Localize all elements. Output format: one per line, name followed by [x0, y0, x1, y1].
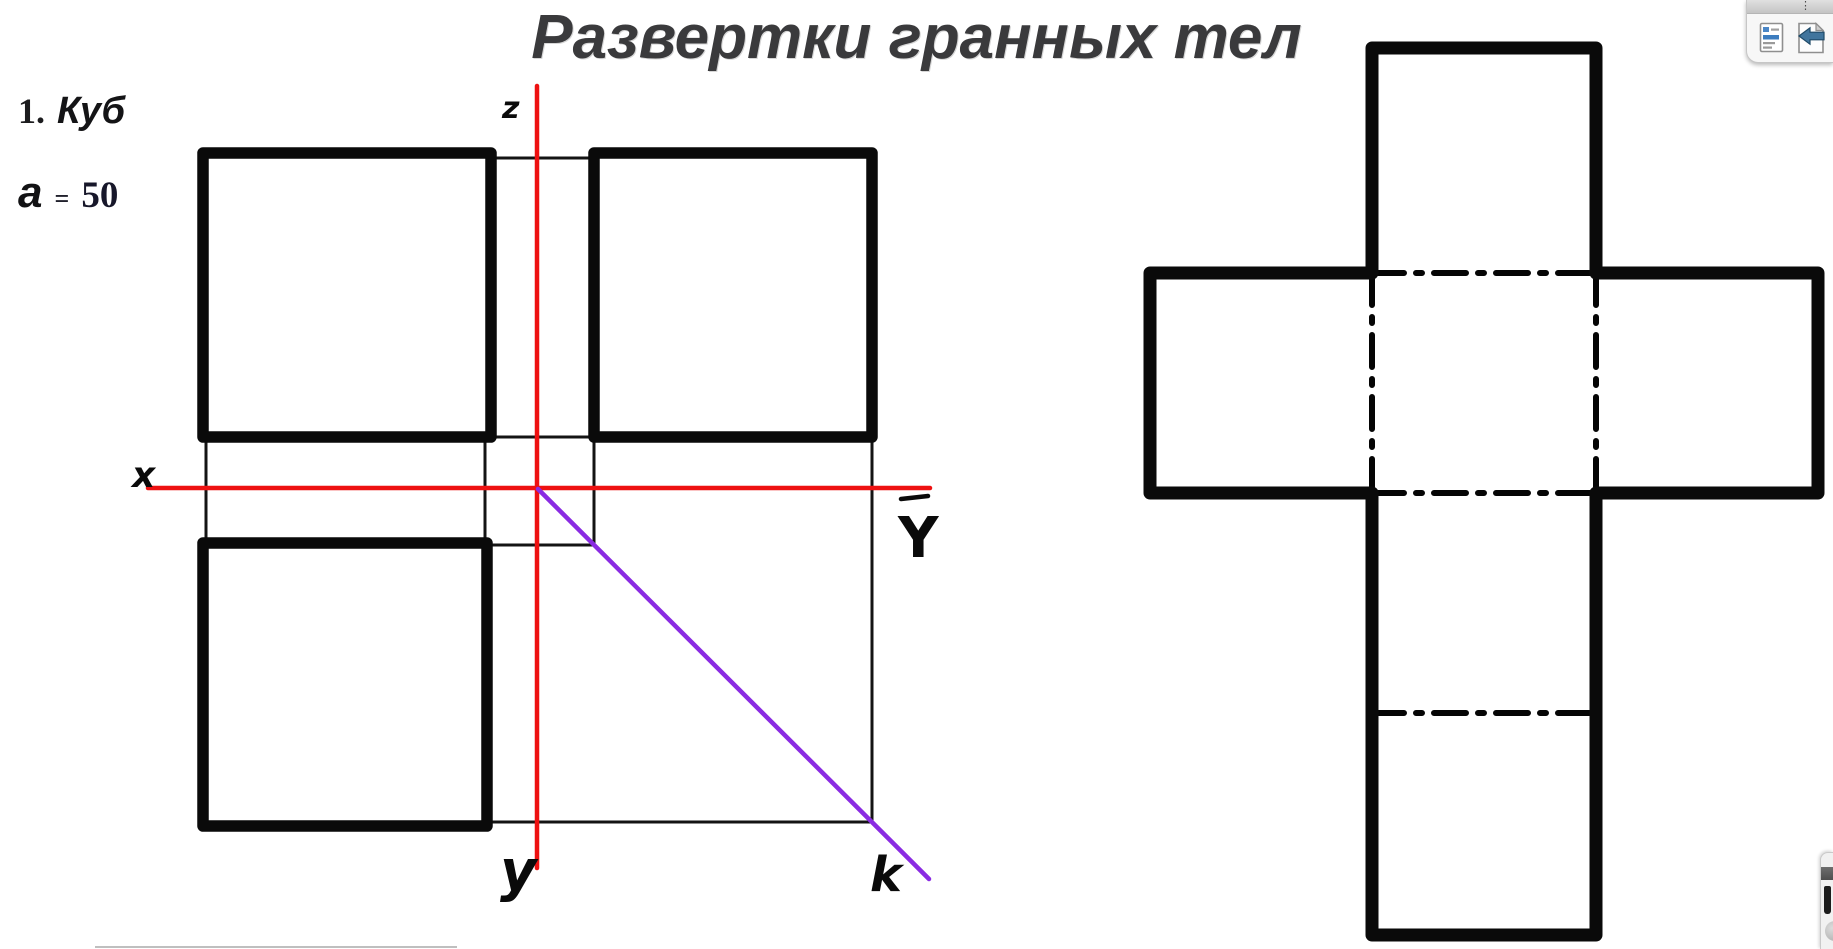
- page-edge-line: [95, 946, 457, 948]
- floating-toolbar: ⋮: [1746, 0, 1833, 63]
- front-view-square: [203, 153, 491, 437]
- toolbar-drag-handle[interactable]: ⋮: [1747, 0, 1833, 14]
- previous-page-button[interactable]: [1796, 20, 1826, 56]
- cube-projection-figure[interactable]: z x y k Y: [130, 86, 940, 904]
- side-toolbar-fragment[interactable]: [1820, 852, 1833, 949]
- axis-label-y: y: [500, 839, 539, 904]
- side-view-square: [594, 153, 872, 437]
- axis-label-z: z: [501, 91, 520, 126]
- pen-tool-icon[interactable]: [1824, 886, 1831, 914]
- page-list-button[interactable]: [1757, 20, 1787, 56]
- axis-label-y-bar: Y: [897, 496, 940, 571]
- axis-label-x: x: [130, 455, 157, 496]
- page-back-icon: [1796, 22, 1826, 54]
- fold-lines: [1372, 273, 1596, 713]
- side-toolbar-handle[interactable]: [1821, 867, 1833, 880]
- cube-net-figure[interactable]: [1150, 48, 1818, 935]
- toolbar-menu-dots[interactable]: ⋮: [1800, 0, 1811, 13]
- coordinate-axes: [148, 86, 930, 868]
- y-bar-overbar: [901, 496, 928, 499]
- top-view-square: [203, 543, 487, 826]
- page-list-icon: [1759, 22, 1785, 54]
- knob-icon[interactable]: [1825, 921, 1833, 941]
- whiteboard-canvas: z x y k Y: [0, 0, 1833, 949]
- label-k: k: [870, 847, 905, 903]
- y-bar-letter: Y: [897, 506, 940, 571]
